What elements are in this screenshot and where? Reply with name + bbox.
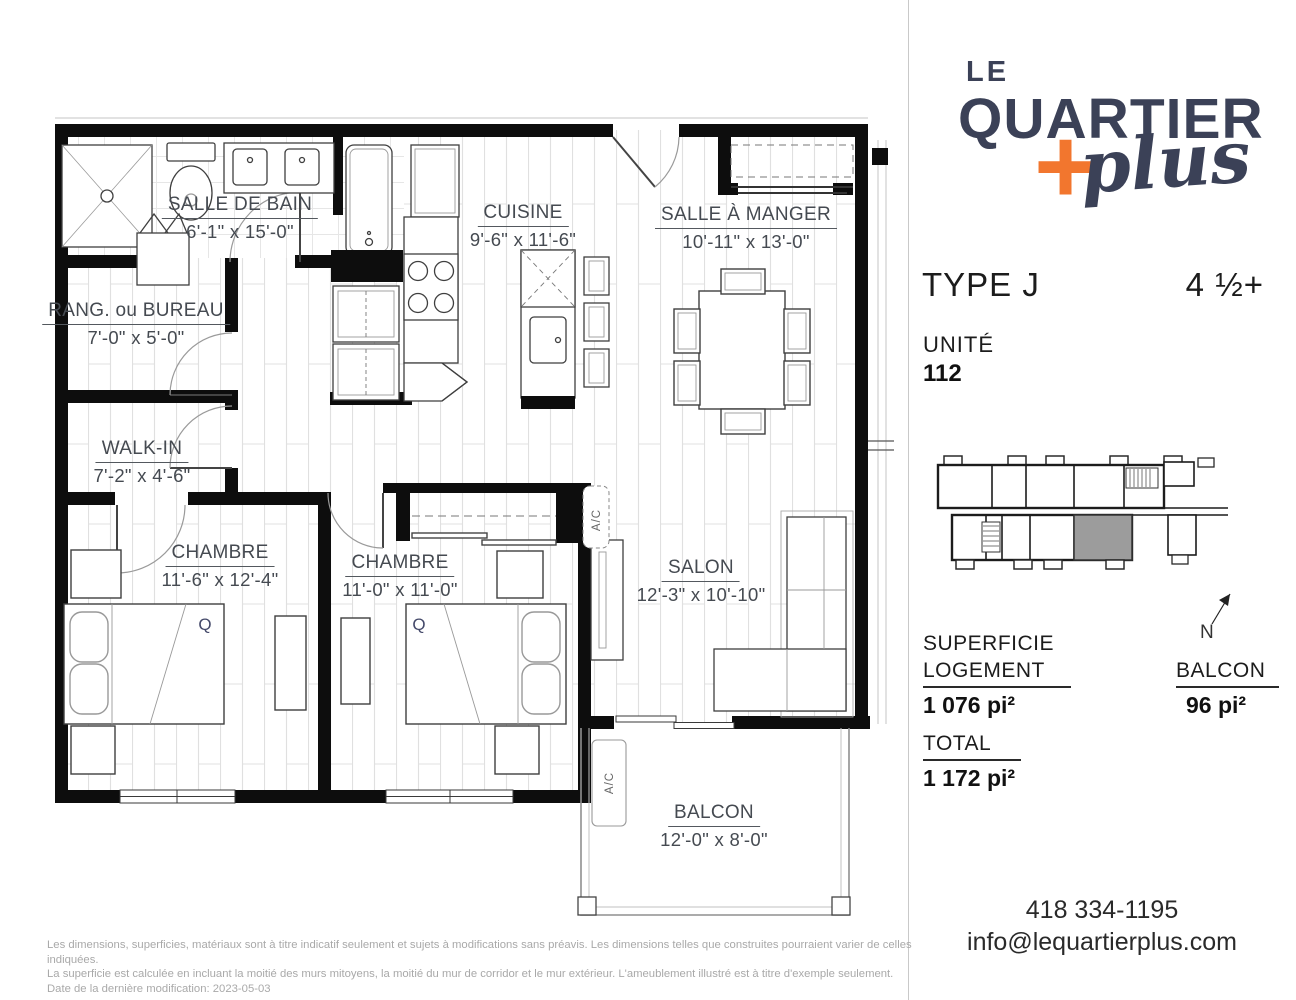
sink <box>233 149 267 185</box>
sofa-seat <box>714 649 846 711</box>
highlighted-unit <box>1074 515 1132 560</box>
nightstand <box>71 550 121 598</box>
room-label-chambre-2: CHAMBRE 11'-0" x 11'-0" <box>342 552 458 600</box>
neighbor-wall-stub <box>872 148 888 165</box>
tv <box>599 552 606 648</box>
unit-layout: 4 ½+ <box>1186 266 1264 304</box>
pillow <box>522 664 560 714</box>
logement-label: LOGEMENT <box>923 659 1071 688</box>
room-label-cuisine: CUISINE 9'-6" x 11'-6" <box>470 202 576 250</box>
logement-value: 1 076 pi² <box>923 692 1015 719</box>
room-label-salle-a-manger: SALLE À MANGER 10'-11" x 13'-0" <box>655 204 837 252</box>
pillow <box>522 612 560 662</box>
contact-email: info@lequartierplus.com <box>908 928 1296 957</box>
room-label-salon: SALON 12'-3" x 10'-10" <box>637 557 766 605</box>
dresser <box>341 618 370 704</box>
north-arrow: N <box>1200 594 1230 643</box>
toilet-tank <box>167 143 215 161</box>
unite-label: UNITÉ <box>923 332 994 358</box>
building-key-plan: N <box>924 448 1256 644</box>
queen-marker: Q <box>198 615 211 634</box>
pillow <box>70 664 108 714</box>
dining-table <box>699 291 785 409</box>
type-row: TYPE J 4 ½+ <box>922 266 1264 304</box>
room-label-chambre-1: CHAMBRE 11'-6" x 12'-4" <box>162 542 279 590</box>
floor-plan: A/C A/C Q Q SALLE DE BAIN 6'-1" x 15'-0"… <box>0 0 908 1000</box>
total-label: TOTAL <box>923 732 1021 761</box>
balcony-post <box>578 897 596 915</box>
logo-le: LE <box>966 56 1009 89</box>
balcon-value: 96 pi² <box>1186 692 1246 719</box>
nightstand <box>497 551 543 598</box>
balcon-label: BALCON <box>1176 659 1279 688</box>
room-label-rang-ou-bureau: RANG. ou BUREAU 7'-0" x 5'-0" <box>42 300 230 348</box>
queen-marker: Q <box>412 615 425 634</box>
exterior-ticks <box>866 441 894 450</box>
disclaimer-line2: La superficie est calculée en incluant l… <box>47 967 919 982</box>
logo-plus-word: plus <box>1078 120 1253 204</box>
sink <box>285 149 319 185</box>
floor-plan-sheet: A/C A/C Q Q SALLE DE BAIN 6'-1" x 15'-0"… <box>0 0 1296 1000</box>
total-value: 1 172 pi² <box>923 765 1015 792</box>
disclaimer: Les dimensions, superficies, matériaux s… <box>47 938 919 996</box>
room-label-salle-de-bain: SALLE DE BAIN 6'-1" x 15'-0" <box>162 194 318 242</box>
ac-label: A/C <box>604 772 616 794</box>
superficie-label: SUPERFICIE <box>923 632 1054 656</box>
tv-console <box>591 540 623 660</box>
closet-slider <box>482 540 556 545</box>
pillow <box>70 612 108 662</box>
closet-slider <box>412 533 487 538</box>
room-label-walk-in: WALK-IN 7'-2" x 4'-6" <box>93 438 190 486</box>
laundry-counter <box>331 250 403 282</box>
balcony-post <box>832 897 850 915</box>
stairwell <box>982 522 1000 552</box>
disclaimer-line3: Date de la dernière modification: 2023-0… <box>47 982 919 997</box>
dresser <box>275 616 306 710</box>
ac-label: A/C <box>591 509 603 531</box>
contact-phone: 418 334-1195 <box>908 896 1296 925</box>
unit-type: TYPE J <box>922 266 1040 304</box>
info-panel: LE QUARTIER + plus TYPE J 4 ½+ UNITÉ 112 <box>908 0 1296 1000</box>
floor-plan-drawing: A/C A/C Q Q <box>0 0 908 1000</box>
disclaimer-line1: Les dimensions, superficies, matériaux s… <box>47 938 919 967</box>
unit-number: 112 <box>923 360 962 388</box>
nightstand <box>71 726 115 774</box>
room-label-balcon: BALCON 12'-0" x 8'-0" <box>660 802 768 850</box>
nightstand <box>495 726 539 774</box>
north-label: N <box>1200 622 1214 643</box>
